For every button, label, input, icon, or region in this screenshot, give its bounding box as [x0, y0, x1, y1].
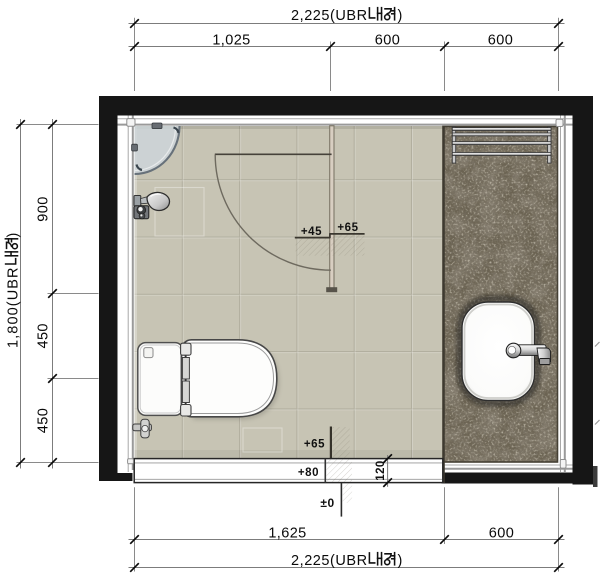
- svg-text:450: 450: [36, 323, 52, 348]
- svg-text:1,025: 1,025: [212, 33, 250, 49]
- svg-text:120: 120: [375, 460, 387, 480]
- svg-text:+65: +65: [304, 438, 325, 450]
- svg-text:): ): [398, 8, 403, 24]
- svg-text:±0: ±0: [320, 496, 334, 510]
- svg-text:2,225(UBR: 2,225(UBR: [291, 553, 368, 569]
- svg-text:): ): [398, 553, 403, 569]
- svg-text:+80: +80: [298, 467, 319, 479]
- svg-text:+45: +45: [301, 226, 322, 238]
- svg-text:1,800(UBR: 1,800(UBR: [6, 266, 22, 348]
- svg-text:2,225(UBR: 2,225(UBR: [291, 8, 368, 24]
- svg-text:+65: +65: [337, 222, 358, 234]
- svg-text:1,625: 1,625: [268, 526, 306, 542]
- svg-text:600: 600: [488, 33, 513, 49]
- svg-text:900: 900: [36, 196, 52, 221]
- svg-text:600: 600: [489, 526, 514, 542]
- svg-text:600: 600: [375, 33, 400, 49]
- svg-text:450: 450: [36, 408, 52, 433]
- svg-text:): ): [6, 233, 22, 238]
